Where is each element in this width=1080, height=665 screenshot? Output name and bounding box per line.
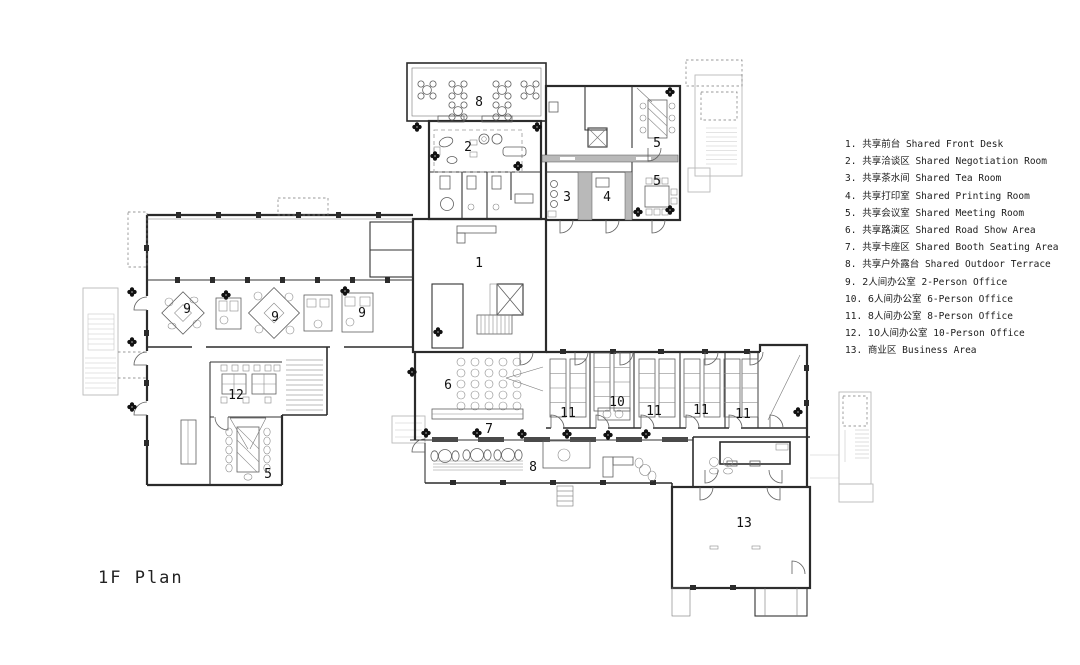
- legend-item: 7. 共享卡座区 Shared Booth Seating Area: [845, 239, 1060, 256]
- legend-item: 9. 2人间办公室 2-Person Office: [845, 274, 1060, 291]
- legend-number: 4.: [845, 191, 856, 202]
- legend-item: 3. 共享茶水间 Shared Tea Room: [845, 170, 1060, 187]
- room-label-terrace-top: 8: [475, 95, 483, 110]
- legend-en: 2-Person Office: [921, 277, 1007, 288]
- room-label-meeting-c: 5: [264, 467, 272, 482]
- courtyard-steps: [392, 416, 425, 443]
- legend-item: 4. 共享打印室 Shared Printing Room: [845, 188, 1060, 205]
- room-label-office11-b: 11: [646, 404, 662, 419]
- legend-zh: 共享卡座区: [862, 242, 910, 253]
- legend-number: 9.: [845, 277, 856, 288]
- legend-item: 2. 共享洽谈区 Shared Negotiation Room: [845, 153, 1060, 170]
- room-label-office12: 12: [228, 388, 244, 403]
- legend-zh: 共享打印室: [862, 191, 910, 202]
- legend-zh: 6人间办公室: [868, 294, 922, 305]
- legend-number: 2.: [845, 156, 856, 167]
- legend-en: Shared Printing Room: [915, 191, 1029, 202]
- legend-item: 12. 10人间办公室 10-Person Office: [845, 325, 1060, 342]
- page-title: 1F Plan: [98, 568, 184, 588]
- room-label-meeting-b: 5: [653, 174, 661, 189]
- room-label-office10: 10: [609, 395, 625, 410]
- legend-en: Shared Negotiation Room: [915, 156, 1047, 167]
- room-label-booth: 7: [485, 422, 493, 437]
- room-label-printing: 4: [603, 190, 611, 205]
- room-label-negotiation: 2: [464, 140, 472, 155]
- room-label-office9-c: 9: [358, 306, 366, 321]
- legend-number: 1.: [845, 139, 856, 150]
- room-label-terrace-bottom: 8: [529, 460, 537, 475]
- room-label-business-area: 13: [736, 516, 752, 531]
- legend-zh: 10人间办公室: [868, 328, 928, 339]
- floor-plan-page: 8 2 5 3 4 5 1 9 9 9 12 5 6 7 8 11 10 11 …: [0, 0, 1080, 665]
- legend-zh: 共享会议室: [862, 208, 910, 219]
- legend-en: Business Area: [902, 345, 976, 356]
- legend-number: 5.: [845, 208, 856, 219]
- room-label-office11-a: 11: [560, 406, 576, 421]
- legend-en: 10-Person Office: [933, 328, 1025, 339]
- exterior-stair-top-right: [686, 60, 742, 192]
- room-label-office11-d: 11: [735, 407, 751, 422]
- legend-en: 8-Person Office: [927, 311, 1013, 322]
- legend-en: Shared Meeting Room: [915, 208, 1024, 219]
- legend-number: 11.: [845, 311, 862, 322]
- legend-en: Shared Outdoor Terrace: [925, 259, 1051, 270]
- legend-number: 8.: [845, 259, 856, 270]
- legend-item: 5. 共享会议室 Shared Meeting Room: [845, 205, 1060, 222]
- legend-number: 7.: [845, 242, 856, 253]
- legend-number: 12.: [845, 328, 862, 339]
- legend-en: 6-Person Office: [927, 294, 1013, 305]
- room-label-front-desk: 1: [475, 256, 483, 271]
- legend-number: 10.: [845, 294, 862, 305]
- room-label-office9-b: 9: [271, 310, 279, 325]
- exterior-stair-left: [83, 288, 147, 395]
- legend-item: 10. 6人间办公室 6-Person Office: [845, 291, 1060, 308]
- legend-item: 8. 共享户外露台 Shared Outdoor Terrace: [845, 256, 1060, 273]
- legend-number: 3.: [845, 173, 856, 184]
- legend-en: Shared Road Show Area: [915, 225, 1035, 236]
- legend-zh: 共享路演区: [862, 225, 910, 236]
- furniture: [162, 81, 760, 549]
- legend-en: Shared Front Desk: [906, 139, 1003, 150]
- legend-item: 13. 商业区 Business Area: [845, 342, 1060, 359]
- legend-zh: 2人间办公室: [862, 277, 916, 288]
- legend-zh: 商业区: [868, 345, 897, 356]
- legend-item: 6. 共享路演区 Shared Road Show Area: [845, 222, 1060, 239]
- room-label-tea: 3: [563, 190, 571, 205]
- room-label-office9-a: 9: [183, 302, 191, 317]
- room-label-office11-c: 11: [693, 403, 709, 418]
- legend-zh: 共享前台: [862, 139, 900, 150]
- legend: 1. 共享前台 Shared Front Desk 2. 共享洽谈区 Share…: [845, 136, 1060, 360]
- exterior-stair-bottom-right: [810, 392, 873, 502]
- legend-zh: 共享茶水间: [862, 173, 910, 184]
- legend-zh: 8人间办公室: [868, 311, 922, 322]
- legend-number: 6.: [845, 225, 856, 236]
- legend-item: 1. 共享前台 Shared Front Desk: [845, 136, 1060, 153]
- legend-number: 13.: [845, 345, 862, 356]
- room-label-road-show: 6: [444, 378, 452, 393]
- legend-zh: 共享洽谈区: [862, 156, 910, 167]
- legend-zh: 共享户外露台: [862, 259, 919, 270]
- room-label-meeting-a: 5: [653, 136, 661, 151]
- legend-item: 11. 8人间办公室 8-Person Office: [845, 308, 1060, 325]
- legend-en: Shared Booth Seating Area: [915, 242, 1058, 253]
- legend-en: Shared Tea Room: [915, 173, 1001, 184]
